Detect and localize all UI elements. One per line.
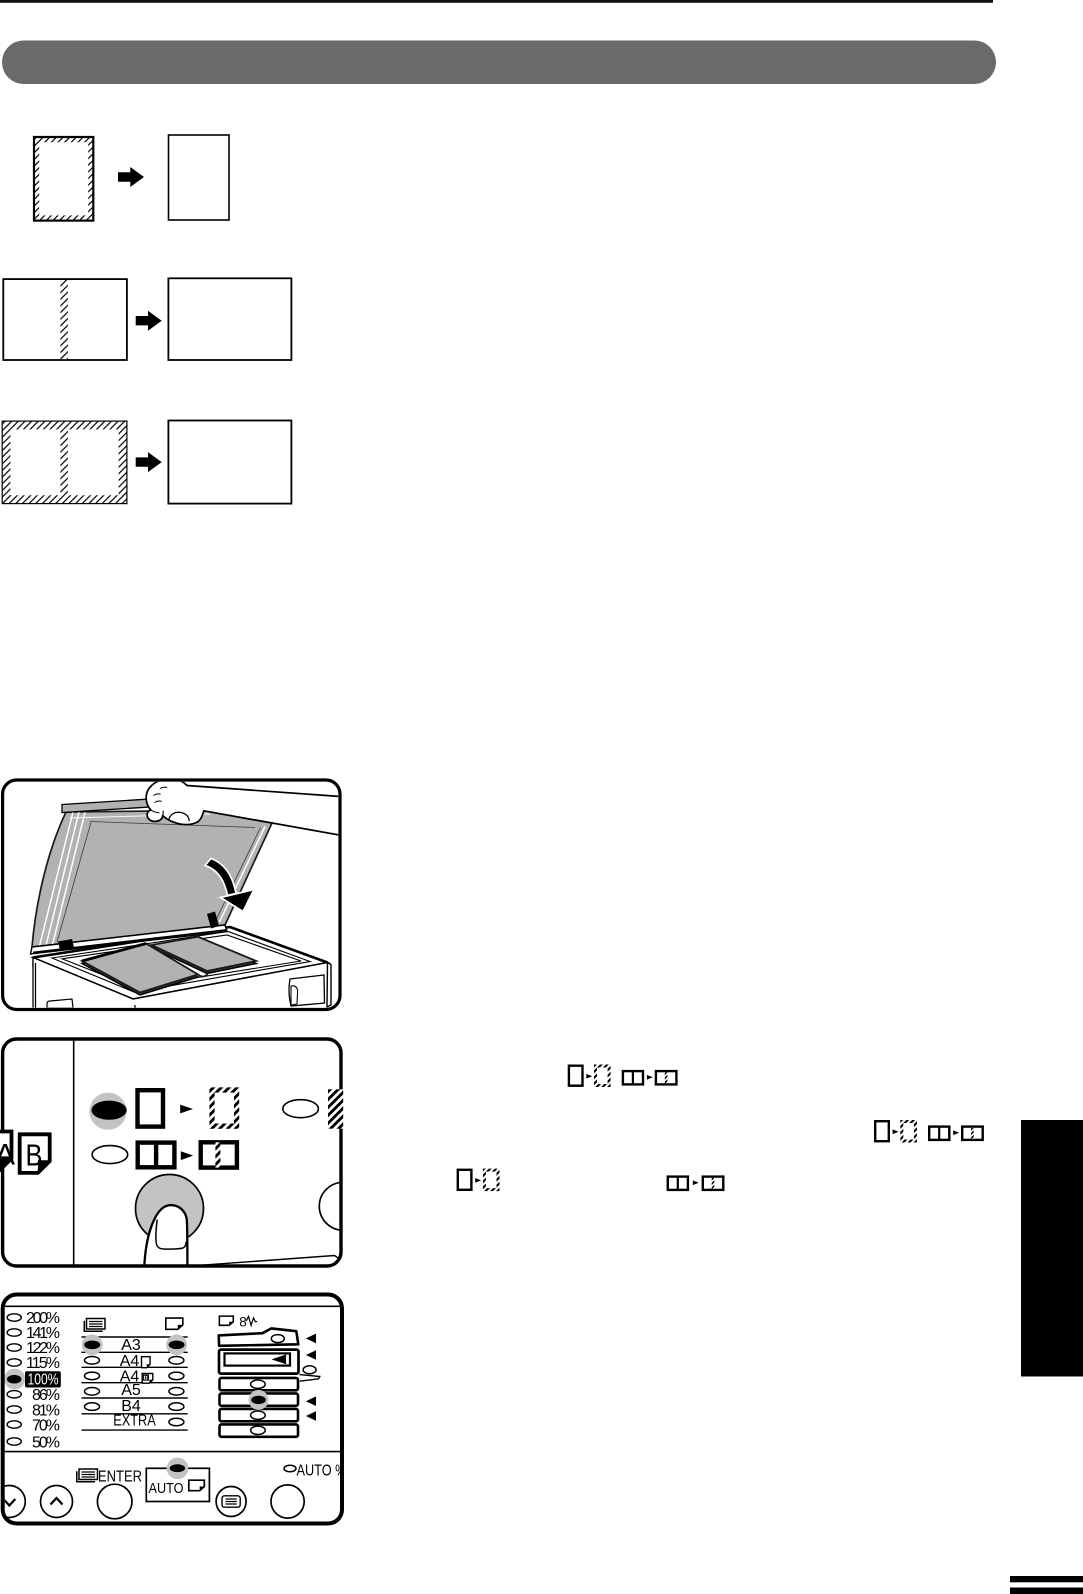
svg-text:A: A — [0, 1139, 15, 1172]
svg-text:B: B — [26, 1138, 43, 1173]
svg-text:70%: 70% — [32, 1417, 60, 1434]
svg-text:50%: 50% — [32, 1434, 60, 1451]
svg-text:ENTER: ENTER — [98, 1468, 142, 1485]
svg-text:100%: 100% — [28, 1371, 59, 1388]
svg-text:115%: 115% — [26, 1355, 60, 1372]
svg-text:8: 8 — [239, 1314, 247, 1329]
svg-text:A5: A5 — [121, 1382, 141, 1399]
svg-text:EXTRA: EXTRA — [113, 1413, 156, 1430]
svg-text:AUTO %: AUTO % — [297, 1463, 347, 1480]
svg-text:AUTO: AUTO — [149, 1480, 184, 1497]
svg-text:R: R — [145, 1375, 149, 1381]
svg-text:A4: A4 — [120, 1353, 140, 1370]
svg-text:A3: A3 — [121, 1337, 141, 1354]
